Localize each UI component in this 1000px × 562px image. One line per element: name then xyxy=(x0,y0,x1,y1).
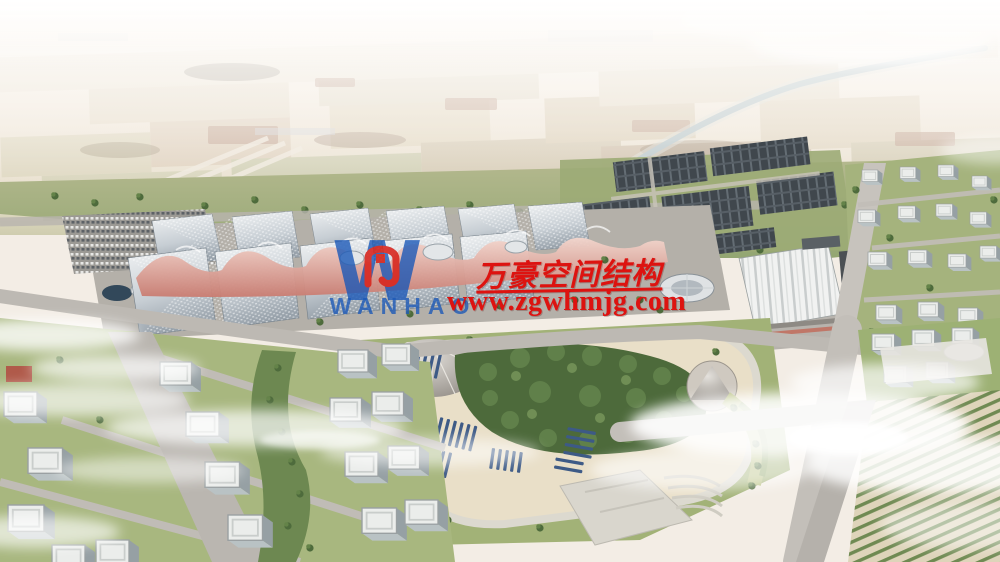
rendered-landscape xyxy=(0,0,1000,562)
circular-pavilion xyxy=(660,274,714,302)
aerial-rendering-image: W WANHAO 万豪空间结构 www.zgwhmjg.com xyxy=(0,0,1000,562)
right-city-district xyxy=(830,150,1000,345)
pond xyxy=(102,285,132,301)
